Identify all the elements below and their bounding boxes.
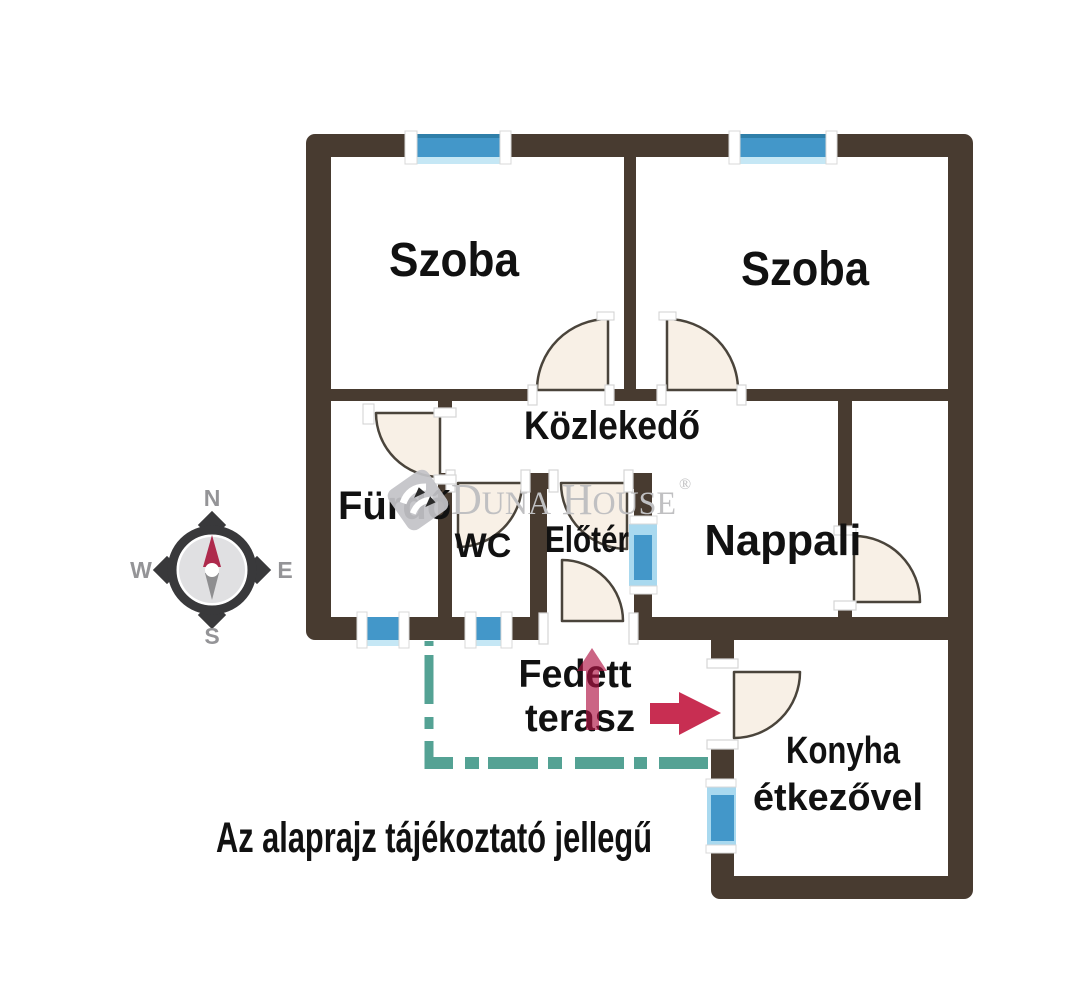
- svg-text:E: E: [277, 557, 292, 583]
- svg-text:Előtér: Előtér: [545, 519, 629, 560]
- svg-text:N: N: [204, 485, 221, 511]
- svg-text:W: W: [130, 557, 152, 583]
- svg-text:Közlekedő: Közlekedő: [524, 404, 700, 448]
- svg-text:terasz: terasz: [525, 697, 635, 740]
- svg-text:Fedett: Fedett: [519, 653, 632, 696]
- svg-text:étkezővel: étkezővel: [753, 777, 923, 819]
- svg-text:Konyha: Konyha: [786, 730, 901, 772]
- svg-text:WC: WC: [455, 527, 512, 565]
- svg-text:Szoba: Szoba: [741, 243, 869, 296]
- svg-text:S: S: [204, 623, 219, 649]
- svg-text:Nappali: Nappali: [705, 516, 862, 565]
- svg-text:®: ®: [679, 476, 691, 493]
- svg-text:Az alaprajz tájékoztató jelleg: Az alaprajz tájékoztató jellegű: [216, 814, 652, 862]
- svg-text:Szoba: Szoba: [389, 234, 519, 287]
